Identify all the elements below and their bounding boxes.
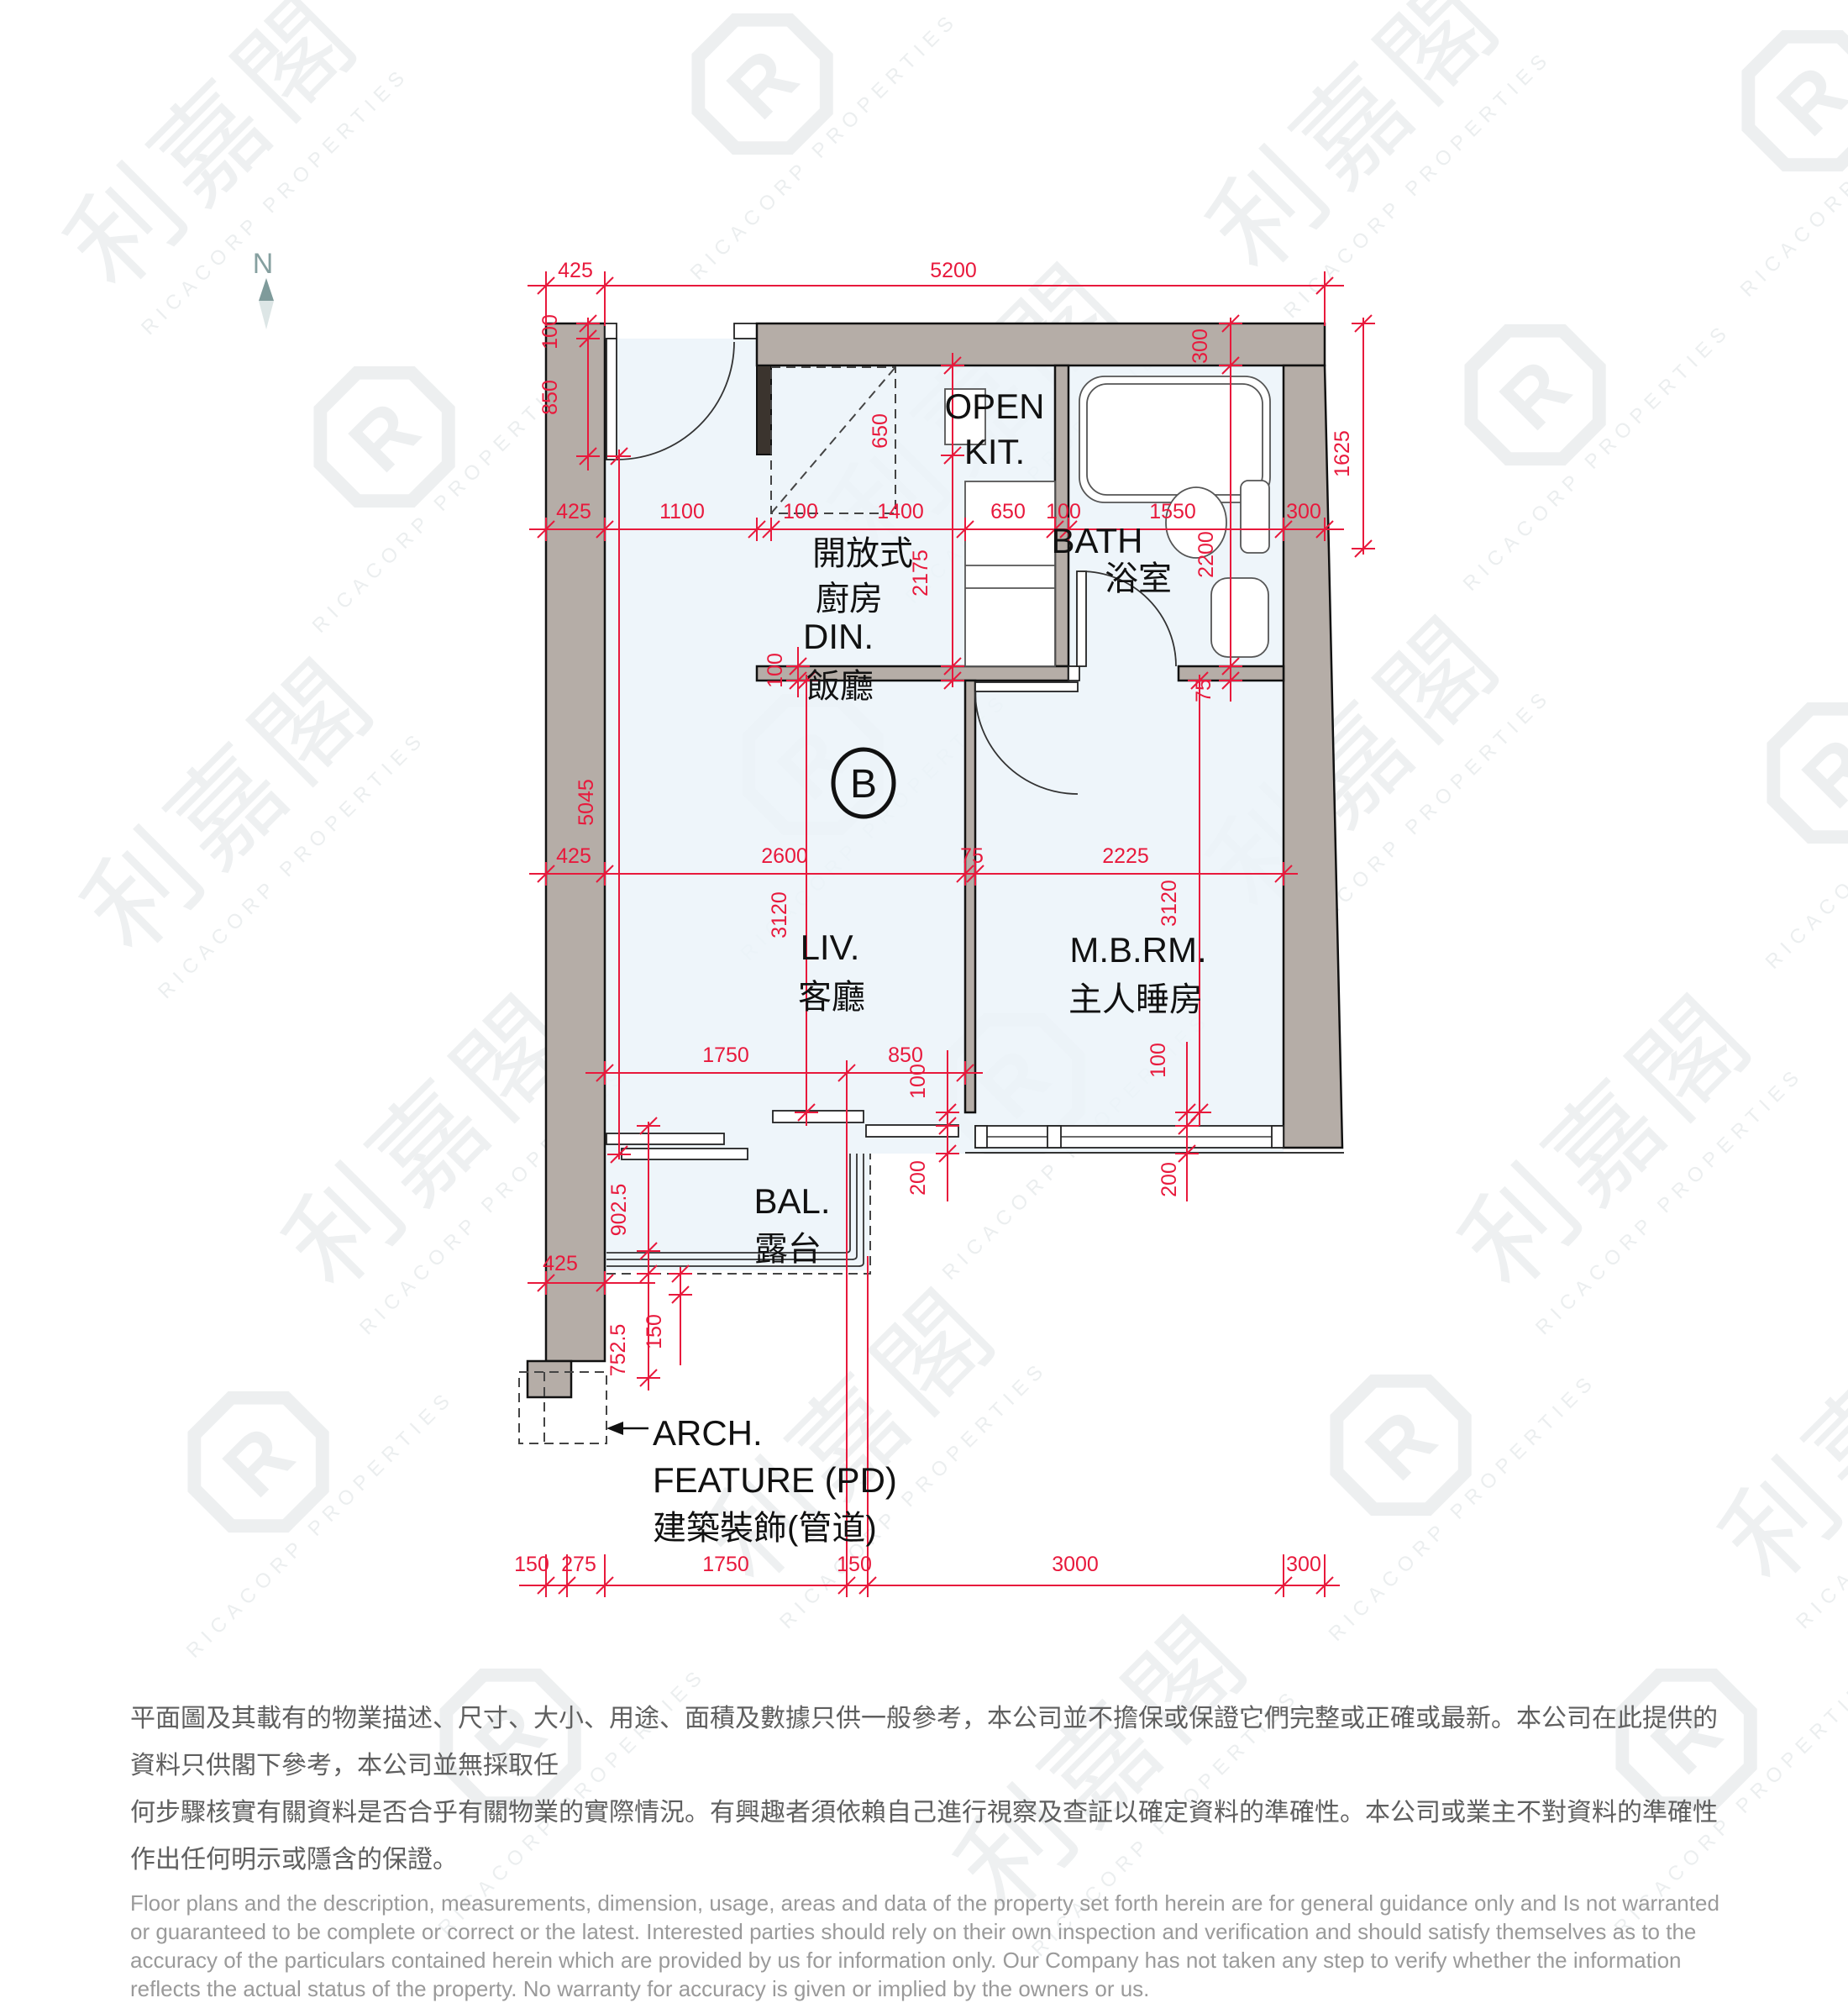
balcony-slide-panel-1 xyxy=(606,1133,724,1144)
label-mbrm: M.B.RM. xyxy=(1069,930,1206,970)
label-din-zh: 飯廳 xyxy=(806,668,874,705)
dimension-label: 3120 xyxy=(768,891,791,938)
left-wall-foot xyxy=(528,1361,571,1397)
north-arrow-upper xyxy=(259,278,274,301)
dimension-label: 1400 xyxy=(877,500,924,523)
north-arrow-lower xyxy=(259,301,274,329)
label-bal: BAL. xyxy=(753,1181,830,1221)
dimension-label: 100 xyxy=(906,1064,930,1099)
entry-door-jamb-right xyxy=(734,323,757,339)
label-liv: LIV. xyxy=(801,928,860,967)
dimension-label: 850 xyxy=(538,380,562,415)
label-bal-zh: 露台 xyxy=(754,1231,822,1268)
disclaimer-en: Floor plans and the description, measure… xyxy=(130,1889,1722,2003)
disclaimer-zh-line2: 何步驟核實有關資料是否合乎有關物業的實際情況。有興趣者須依賴自己進行視察及查証以… xyxy=(130,1790,1722,1884)
north-arrow: N xyxy=(253,248,274,329)
liv-window-panel-2 xyxy=(866,1125,958,1137)
dimension-label: 300 xyxy=(1286,500,1321,523)
bathroom-sink xyxy=(1211,578,1268,657)
entry-door-jamb-left xyxy=(605,323,617,339)
label-open-kit: KIT. xyxy=(964,432,1025,471)
label-mbrm-zh: 主人睡房 xyxy=(1068,981,1203,1018)
right-wall xyxy=(1284,365,1342,1148)
dimension-label: 650 xyxy=(869,413,892,449)
dimension-label: 300 xyxy=(1189,329,1212,364)
dimension-label: 200 xyxy=(906,1160,930,1196)
label-liv-zh: 客廳 xyxy=(798,979,865,1016)
dimension-label: 425 xyxy=(556,500,591,523)
dimension-label: 1100 xyxy=(659,500,705,523)
floor-plan-page: { "watermark": { "initial": "R", "name_z… xyxy=(0,0,1848,1848)
mbrm-window-mullion xyxy=(975,1126,987,1148)
dimension-label: 200 xyxy=(1158,1162,1181,1197)
dimension-label: 425 xyxy=(543,1252,578,1275)
disclaimer: 平面圖及其載有的物業描述、尺寸、大小、用途、面積及數據只供一般參考，本公司並不擔… xyxy=(130,1695,1722,2003)
kitchen-wall-stub xyxy=(757,365,771,455)
disclaimer-zh-line1: 平面圖及其載有的物業描述、尺寸、大小、用途、面積及數據只供一般參考，本公司並不擔… xyxy=(130,1695,1722,1790)
dimension-label: 150 xyxy=(837,1553,872,1576)
dimension-label: 5200 xyxy=(930,259,977,282)
label-din: DIN. xyxy=(803,617,874,656)
dimension-label: 902.5 xyxy=(607,1184,631,1237)
unit-letter: B xyxy=(850,762,877,807)
dimension-label: 275 xyxy=(561,1553,596,1576)
liv-mbrm-wall xyxy=(965,681,975,1112)
north-letter: N xyxy=(253,248,274,280)
bath-door-post xyxy=(1068,666,1079,681)
dimension-label: 300 xyxy=(1286,1553,1321,1576)
toilet-tank xyxy=(1241,481,1269,553)
dimension-label: 2600 xyxy=(761,844,808,868)
label-bath-zh: 浴室 xyxy=(1105,560,1172,597)
dimension-label: 850 xyxy=(888,1044,923,1067)
dimension-label: 1625 xyxy=(1331,430,1354,477)
dimension-label: 3120 xyxy=(1158,880,1181,927)
dimension-label: 150 xyxy=(643,1314,666,1349)
left-wall xyxy=(546,323,605,1361)
label-open-kit: OPEN xyxy=(944,386,1044,426)
dimension-label: 100 xyxy=(1147,1043,1170,1078)
dimension-label: 425 xyxy=(556,844,591,868)
kitchen-bottom-wall xyxy=(757,666,1068,681)
dimension-label: 425 xyxy=(558,259,593,282)
mbrm-window-mullion xyxy=(1047,1126,1061,1148)
label-arch-feature-zh: 建築裝飾(管道) xyxy=(653,1510,877,1547)
dimension-label: 150 xyxy=(514,1553,549,1576)
mbrm-window-mullion xyxy=(1272,1126,1284,1148)
dimension-label: 100 xyxy=(783,500,818,523)
label-arch-feature: ARCH. xyxy=(653,1413,763,1453)
mbrm-door-leaf xyxy=(975,682,1078,691)
label-open-kit-zh: 廚房 xyxy=(816,581,883,618)
label-bath: BATH xyxy=(1052,521,1143,560)
dimension-label: 3000 xyxy=(1052,1553,1099,1576)
dimension-label: 5045 xyxy=(575,779,598,826)
top-wall xyxy=(757,323,1325,365)
dimension-label: 650 xyxy=(990,500,1026,523)
dimension-label: 1750 xyxy=(702,1553,749,1576)
arch-arrow-head xyxy=(606,1422,623,1435)
floor-plan-drawing: 4255200425110010014006501001550300425260… xyxy=(0,0,1848,1848)
entry-door-leaf xyxy=(606,339,617,460)
dimension-label: 100 xyxy=(1046,500,1081,523)
dimension-label: 75 xyxy=(960,844,984,868)
dimension-label: 75 xyxy=(1192,679,1215,702)
bath-door-leaf xyxy=(1077,571,1086,666)
dimension-label: 1750 xyxy=(702,1044,749,1067)
dimension-label: 752.5 xyxy=(606,1324,630,1377)
dimension-label: 100 xyxy=(764,653,787,688)
dimension-label: 2225 xyxy=(1102,844,1149,868)
label-arch-feature: FEATURE (PD) xyxy=(653,1460,897,1500)
balcony-slide-panel-2 xyxy=(622,1149,748,1159)
label-open-kit-zh: 開放式 xyxy=(812,535,913,572)
dimension-label: 100 xyxy=(538,314,562,350)
dimension-label: 2200 xyxy=(1194,531,1218,578)
dimension-label: 1550 xyxy=(1149,500,1196,523)
